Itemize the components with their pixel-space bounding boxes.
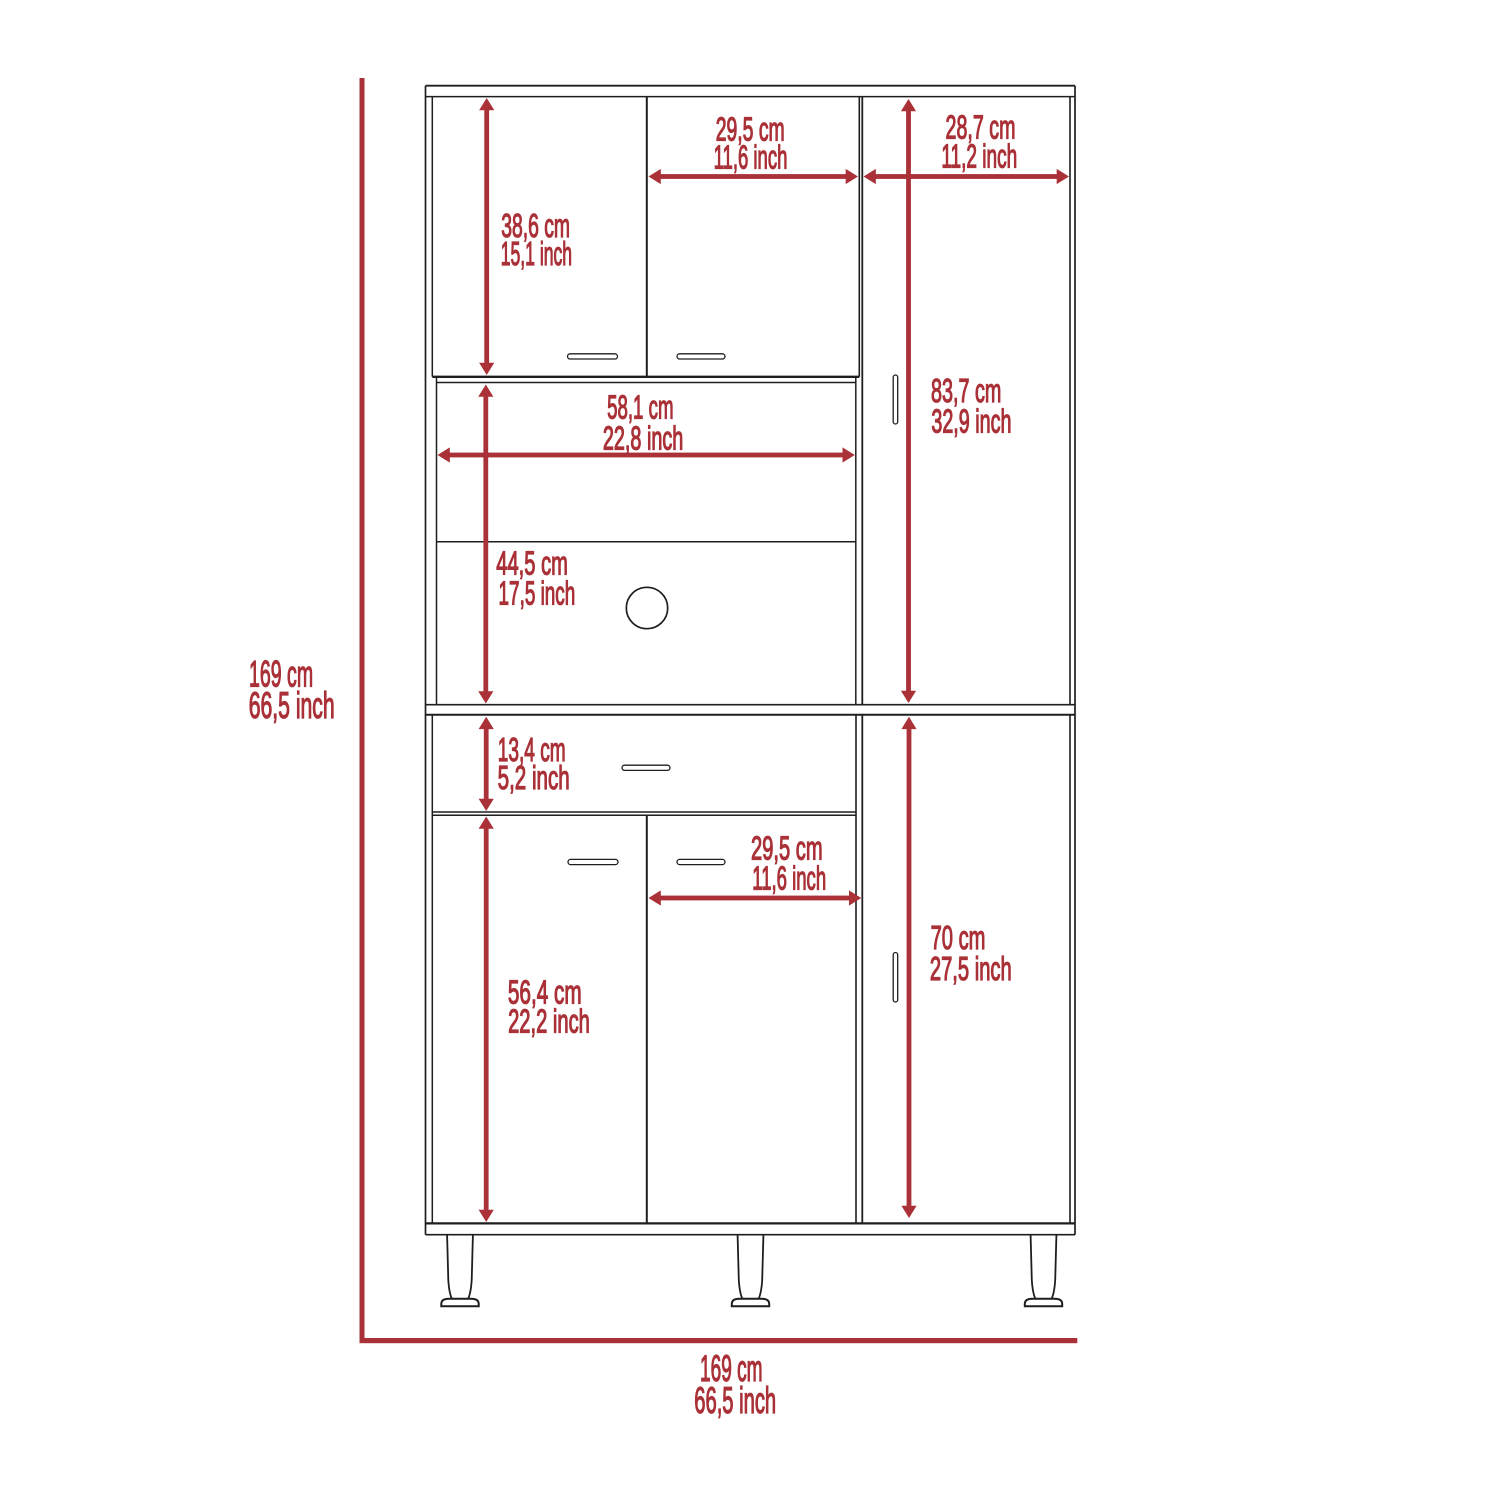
svg-text:11,6 inch: 11,6 inch xyxy=(752,860,826,897)
svg-text:27,5 inch: 27,5 inch xyxy=(930,951,1012,988)
svg-text:66,5 inch: 66,5 inch xyxy=(694,1379,776,1421)
svg-text:17,5 inch: 17,5 inch xyxy=(499,576,576,613)
svg-text:11,2 inch: 11,2 inch xyxy=(941,139,1017,176)
svg-text:32,9 inch: 32,9 inch xyxy=(931,404,1011,441)
svg-text:66,5 inch: 66,5 inch xyxy=(249,684,335,726)
svg-text:11,6 inch: 11,6 inch xyxy=(714,139,788,176)
svg-text:15,1 inch: 15,1 inch xyxy=(501,236,572,273)
svg-text:5,2 inch: 5,2 inch xyxy=(498,760,570,797)
svg-text:22,2 inch: 22,2 inch xyxy=(508,1003,590,1040)
svg-text:22,8 inch: 22,8 inch xyxy=(603,421,683,458)
